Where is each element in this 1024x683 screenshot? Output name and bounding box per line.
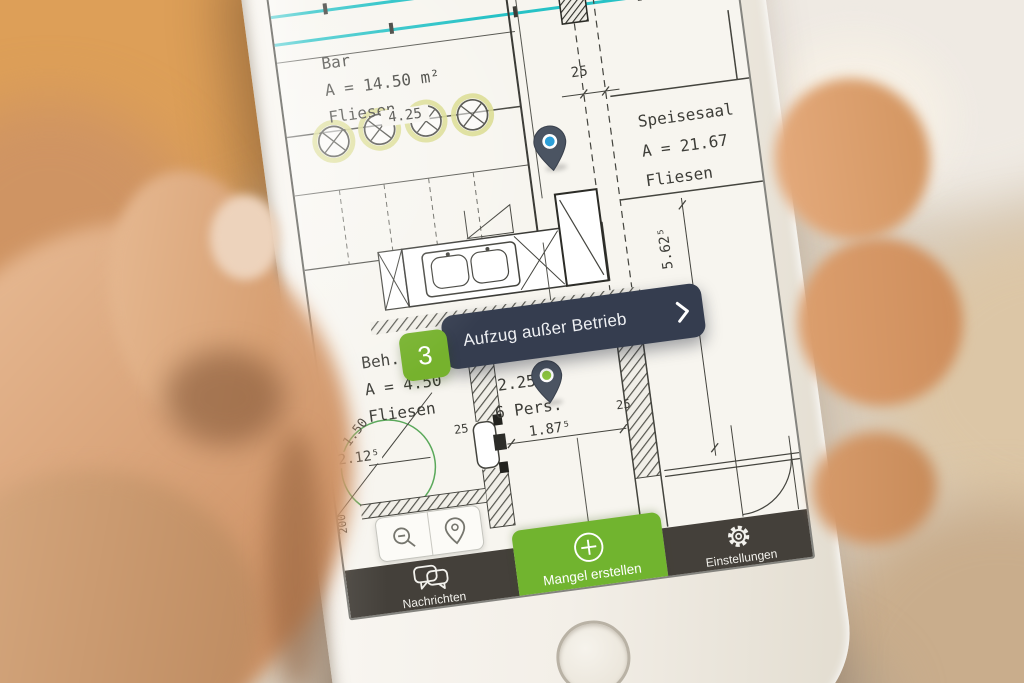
phone-edge-shadow <box>268 430 323 683</box>
defect-callout-label: Aufzug außer Betrieb <box>462 303 678 351</box>
photo-scene: BarA = 14.50 m²Fliesen SpeisesaalA = 21.… <box>0 0 1024 683</box>
thumb-nail <box>210 195 280 280</box>
dim-wall-right: 25 <box>615 397 631 412</box>
zoom-out-button[interactable] <box>375 512 432 561</box>
map-pin-blue-icon[interactable] <box>531 123 571 174</box>
chevron-right-icon <box>675 300 691 324</box>
plus-circle-icon <box>570 528 608 566</box>
defect-count-badge: 3 <box>398 328 452 382</box>
dim-wall-door: 25 <box>453 422 469 437</box>
tab-messages-label: Nachrichten <box>402 588 467 610</box>
tab-settings-label: Einstellungen <box>705 546 778 569</box>
create-defect-label: Mangel erstellen <box>542 560 642 588</box>
magnifier-minus-icon <box>389 523 418 552</box>
speech-bubbles-icon <box>412 562 451 594</box>
room-label-speisesaal: SpeisesaalA = 21.67Fliesen <box>636 94 743 196</box>
gear-icon <box>724 522 753 551</box>
dim-wall-top: 25 <box>570 63 589 81</box>
locate-button[interactable] <box>426 505 484 555</box>
home-button[interactable] <box>552 616 635 683</box>
hand-crease-shadow <box>165 350 285 445</box>
map-pin-outline-icon <box>443 515 469 546</box>
